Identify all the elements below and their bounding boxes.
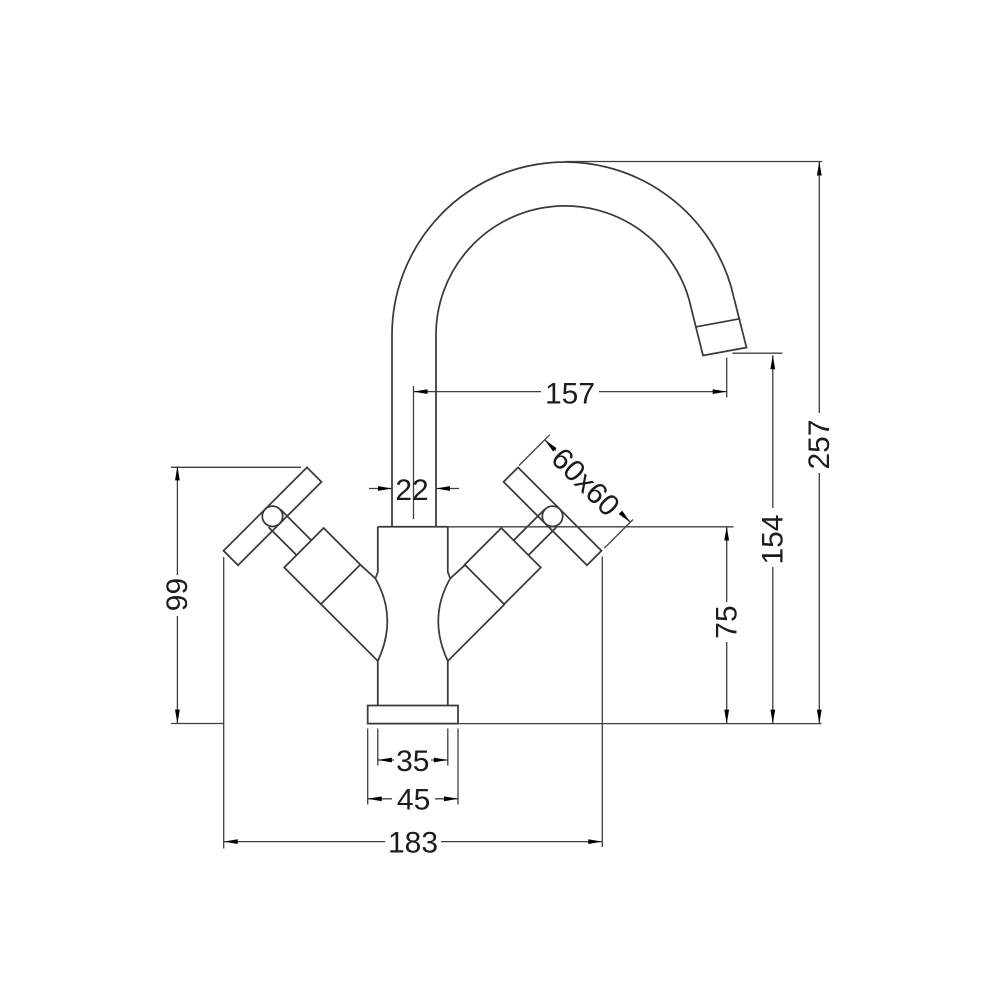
svg-text:183: 183 xyxy=(388,826,438,859)
svg-text:99: 99 xyxy=(161,578,194,611)
svg-text:75: 75 xyxy=(710,605,743,638)
svg-text:157: 157 xyxy=(545,377,595,410)
svg-text:45: 45 xyxy=(397,784,430,817)
svg-text:35: 35 xyxy=(396,745,429,778)
svg-text:257: 257 xyxy=(803,419,836,469)
svg-text:154: 154 xyxy=(757,514,790,564)
svg-text:22: 22 xyxy=(395,474,428,507)
